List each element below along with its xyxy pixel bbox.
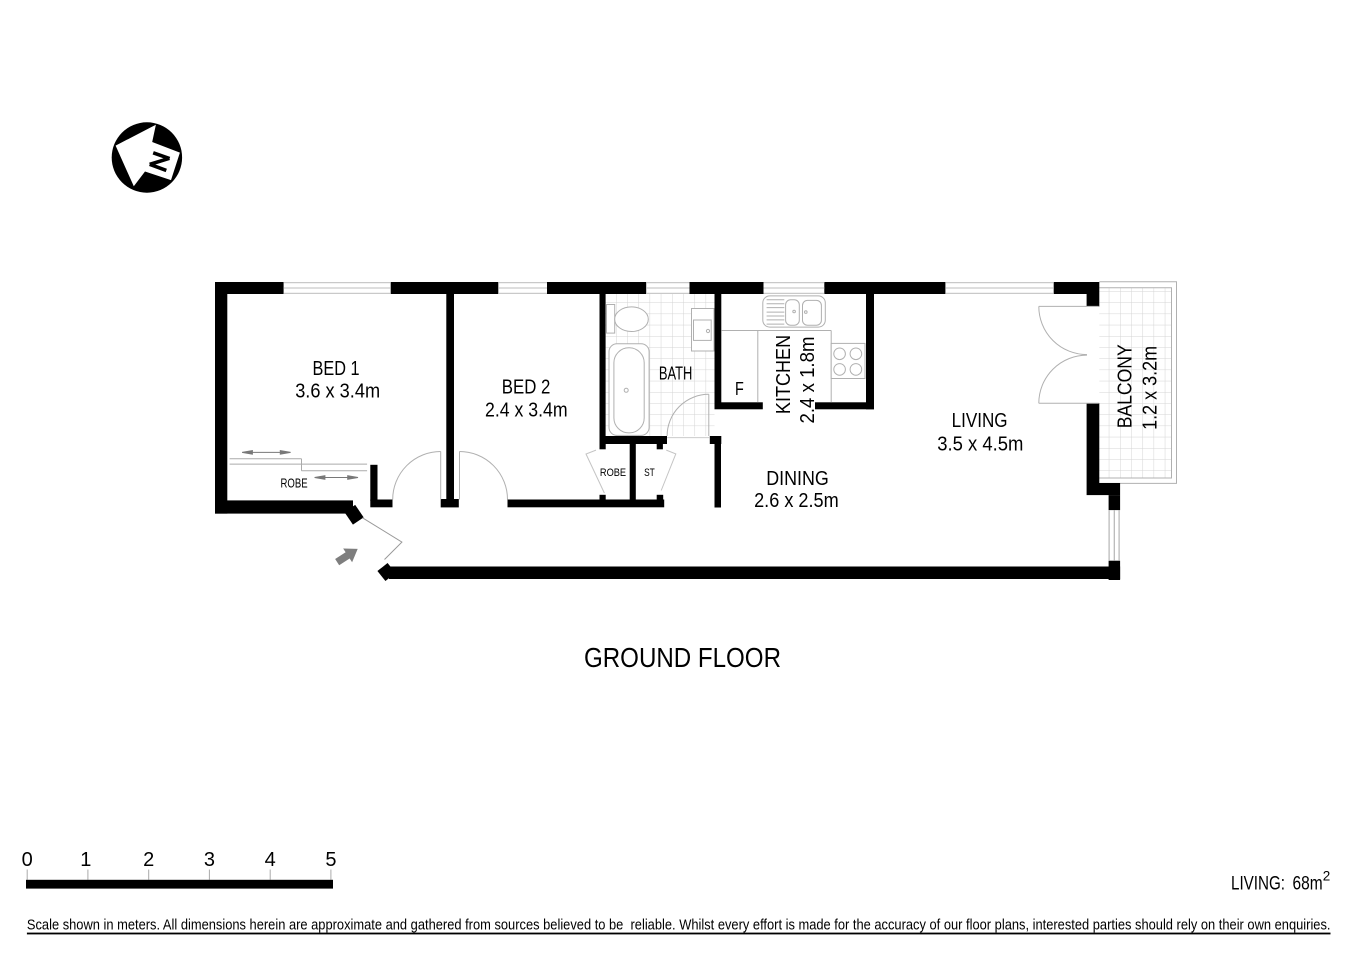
svg-text:1.2 x 3.2m: 1.2 x 3.2m <box>1139 346 1162 430</box>
svg-text:ST: ST <box>644 467 655 479</box>
svg-text:3.6 x 3.4m: 3.6 x 3.4m <box>295 380 380 403</box>
svg-text:F: F <box>735 378 744 399</box>
svg-text:GROUND FLOOR: GROUND FLOOR <box>584 642 781 673</box>
svg-text:ROBE: ROBE <box>281 476 308 491</box>
svg-text:DINING: DINING <box>766 467 829 490</box>
svg-text:ROBE: ROBE <box>600 467 627 479</box>
svg-text:68m: 68m <box>1293 873 1323 895</box>
svg-text:LIVING:: LIVING: <box>1231 873 1285 895</box>
svg-text:2.4 x 1.8m: 2.4 x 1.8m <box>796 337 819 424</box>
svg-text:3: 3 <box>204 849 215 871</box>
svg-text:2.4 x 3.4m: 2.4 x 3.4m <box>485 399 568 422</box>
svg-text:3.5 x 4.5m: 3.5 x 4.5m <box>937 433 1023 456</box>
svg-text:BATH: BATH <box>659 363 693 384</box>
svg-text:BALCONY: BALCONY <box>1114 344 1137 428</box>
svg-text:4: 4 <box>265 849 276 871</box>
svg-text:Scale shown in meters. All dim: Scale shown in meters. All dimensions he… <box>27 918 1331 934</box>
svg-text:KITCHEN: KITCHEN <box>772 335 795 414</box>
svg-text:2.6 x 2.5m: 2.6 x 2.5m <box>754 489 839 512</box>
svg-text:2: 2 <box>143 849 154 871</box>
svg-text:LIVING: LIVING <box>952 409 1008 432</box>
svg-text:BED 1: BED 1 <box>313 357 360 380</box>
svg-text:0: 0 <box>22 849 33 871</box>
svg-text:BED 2: BED 2 <box>502 375 551 398</box>
svg-text:2: 2 <box>1323 869 1331 884</box>
svg-text:1: 1 <box>80 849 91 871</box>
svg-text:5: 5 <box>325 849 336 871</box>
